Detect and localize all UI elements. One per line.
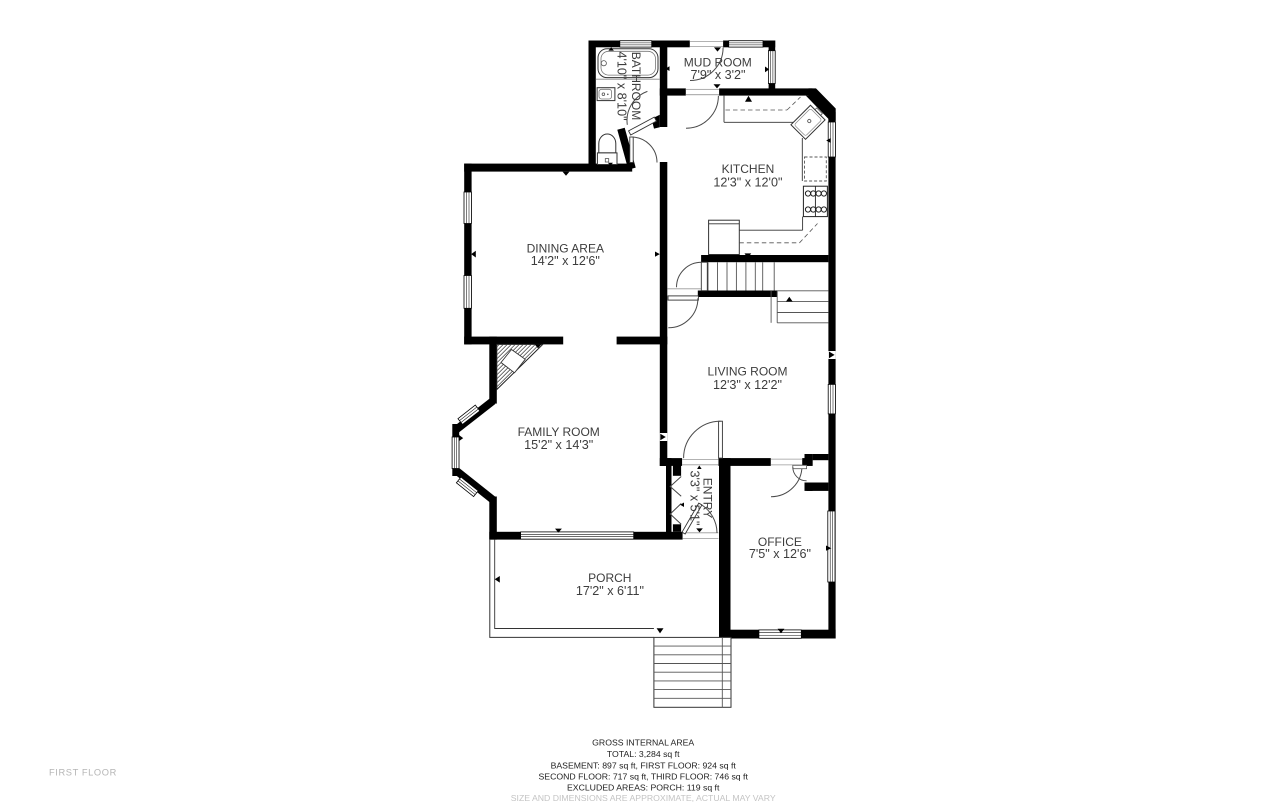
svg-text:TOTAL: 3,284 sq ft: TOTAL: 3,284 sq ft [607, 749, 680, 759]
svg-text:17'2" x 6'11": 17'2" x 6'11" [576, 584, 644, 598]
svg-text:FAMILY ROOM: FAMILY ROOM [518, 425, 600, 439]
svg-text:FIRST FLOOR: FIRST FLOOR [49, 768, 117, 778]
svg-text:7'9" x 3'2": 7'9" x 3'2" [690, 68, 745, 82]
svg-text:SECOND FLOOR: 717 sq ft, THIRD: SECOND FLOOR: 717 sq ft, THIRD FLOOR: 74… [539, 771, 749, 781]
svg-text:BATHROOM: BATHROOM [629, 52, 643, 120]
svg-text:BASEMENT: 897 sq ft, FIRST FLO: BASEMENT: 897 sq ft, FIRST FLOOR: 924 sq… [551, 760, 737, 770]
svg-text:EXCLUDED AREAS: PORCH: 119 sq: EXCLUDED AREAS: PORCH: 119 sq ft [567, 783, 720, 793]
svg-text:ENTRY: ENTRY [700, 478, 714, 518]
svg-text:SIZE AND DIMENSIONS ARE APPROX: SIZE AND DIMENSIONS ARE APPROXIMATE, ACT… [511, 793, 776, 803]
svg-text:12'3" x 12'0": 12'3" x 12'0" [713, 176, 782, 190]
svg-text:LIVING ROOM: LIVING ROOM [707, 365, 787, 379]
svg-text:4'10" x 8'10": 4'10" x 8'10" [615, 51, 629, 120]
svg-text:15'2" x 14'3": 15'2" x 14'3" [524, 438, 593, 452]
svg-text:3'3" x 5'1": 3'3" x 5'1" [688, 470, 702, 525]
svg-text:GROSS INTERNAL AREA: GROSS INTERNAL AREA [592, 737, 694, 747]
svg-text:12'3" x 12'2": 12'3" x 12'2" [713, 378, 782, 392]
svg-text:7'5" x 12'6": 7'5" x 12'6" [749, 547, 811, 561]
svg-text:KITCHEN: KITCHEN [722, 162, 775, 176]
svg-text:14'2" x 12'6": 14'2" x 12'6" [531, 254, 600, 268]
